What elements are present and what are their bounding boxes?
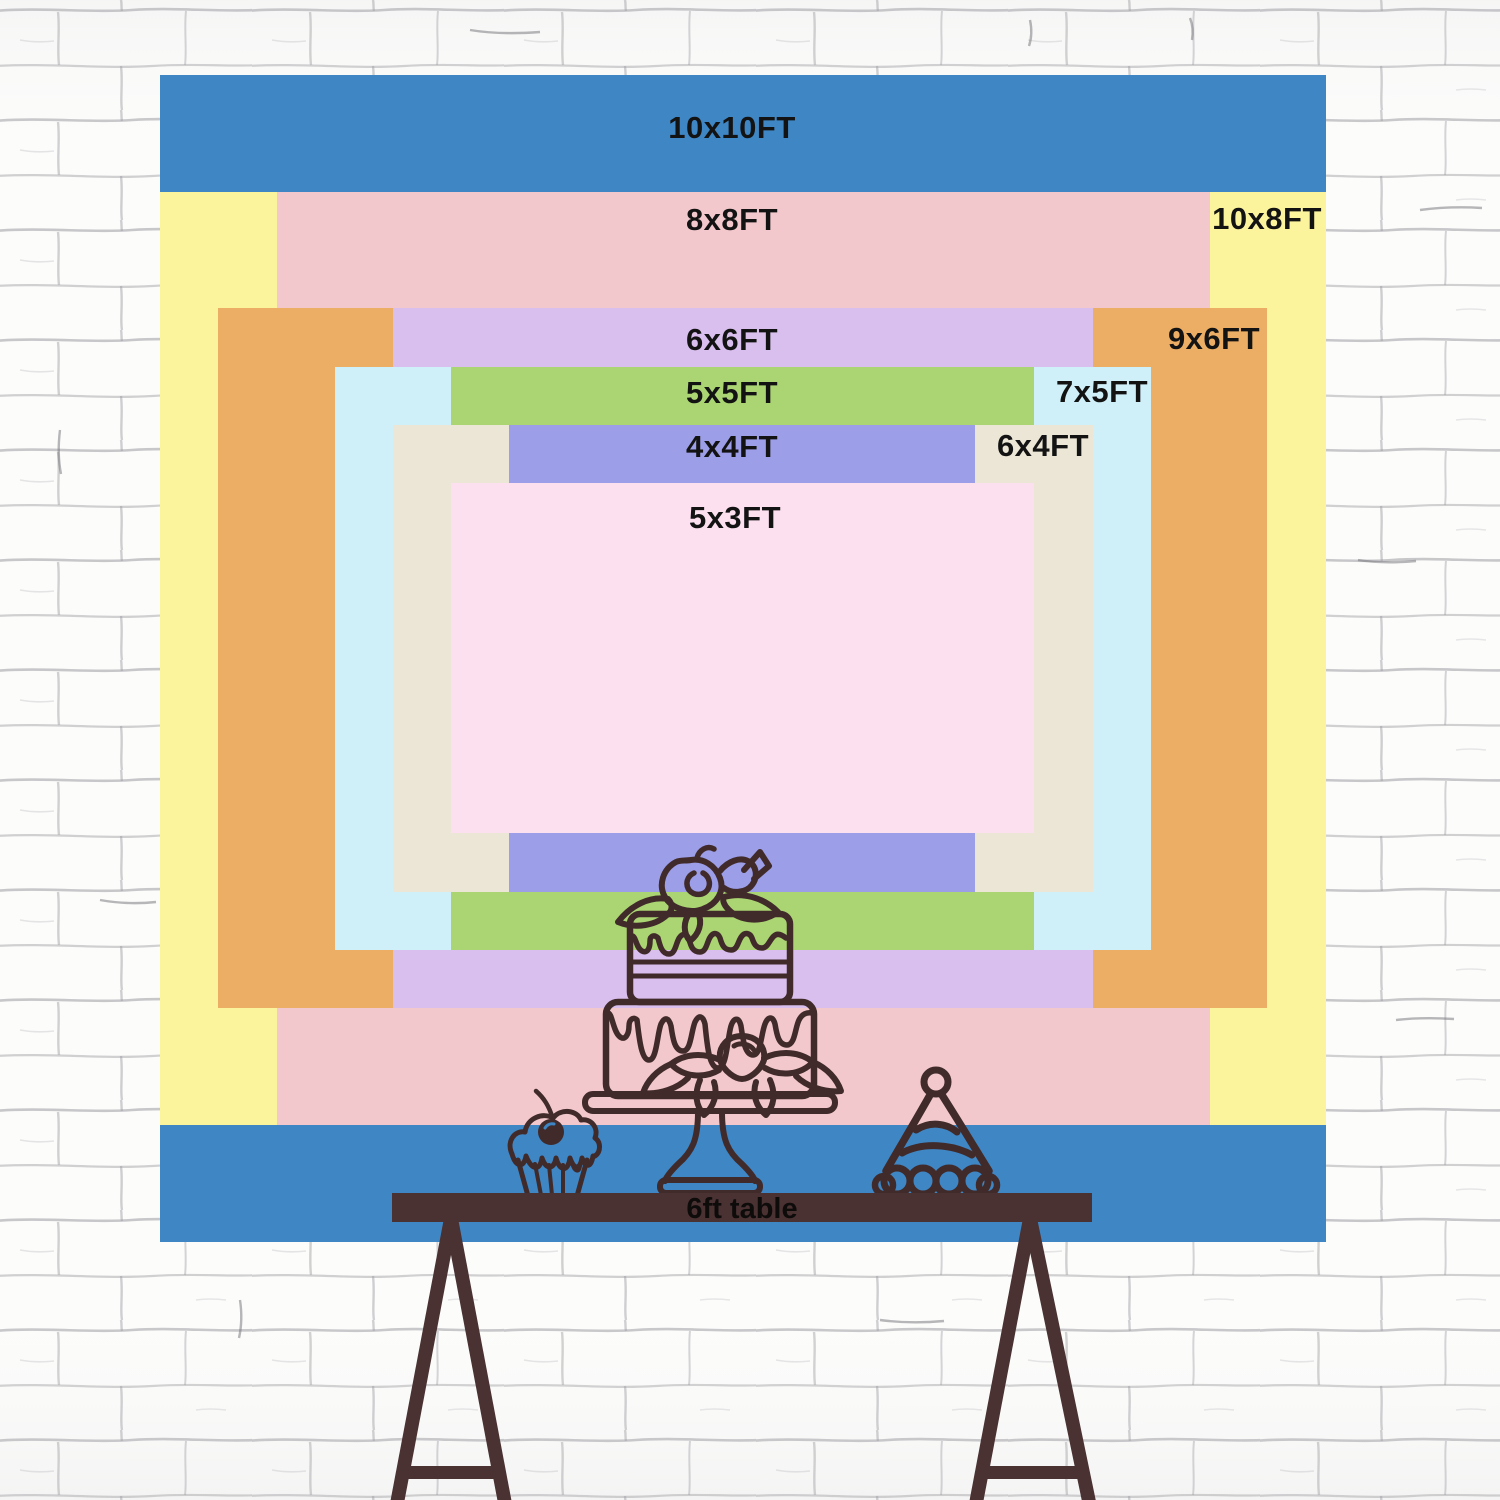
- table-size-label: 6ft table: [686, 1193, 797, 1226]
- size-label-6x4ft: 6x4FT: [997, 428, 1089, 464]
- size-label-9x6ft: 9x6FT: [1168, 321, 1260, 357]
- size-label-6x6ft: 6x6FT: [686, 322, 778, 358]
- size-label-10x10ft: 10x10FT: [668, 110, 796, 146]
- size-label-5x5ft: 5x5FT: [686, 375, 778, 411]
- size-label-4x4ft: 4x4FT: [686, 429, 778, 465]
- size-label-7x5ft: 7x5FT: [1056, 374, 1148, 410]
- backdrop-size-chart: 10x10FT 10x8FT 8x8FT 9x6FT 6x6FT 7x5FT 5…: [0, 0, 1500, 1500]
- size-label-10x8ft: 10x8FT: [1212, 201, 1322, 237]
- size-label-5x3ft: 5x3FT: [689, 500, 781, 536]
- size-label-8x8ft: 8x8FT: [686, 202, 778, 238]
